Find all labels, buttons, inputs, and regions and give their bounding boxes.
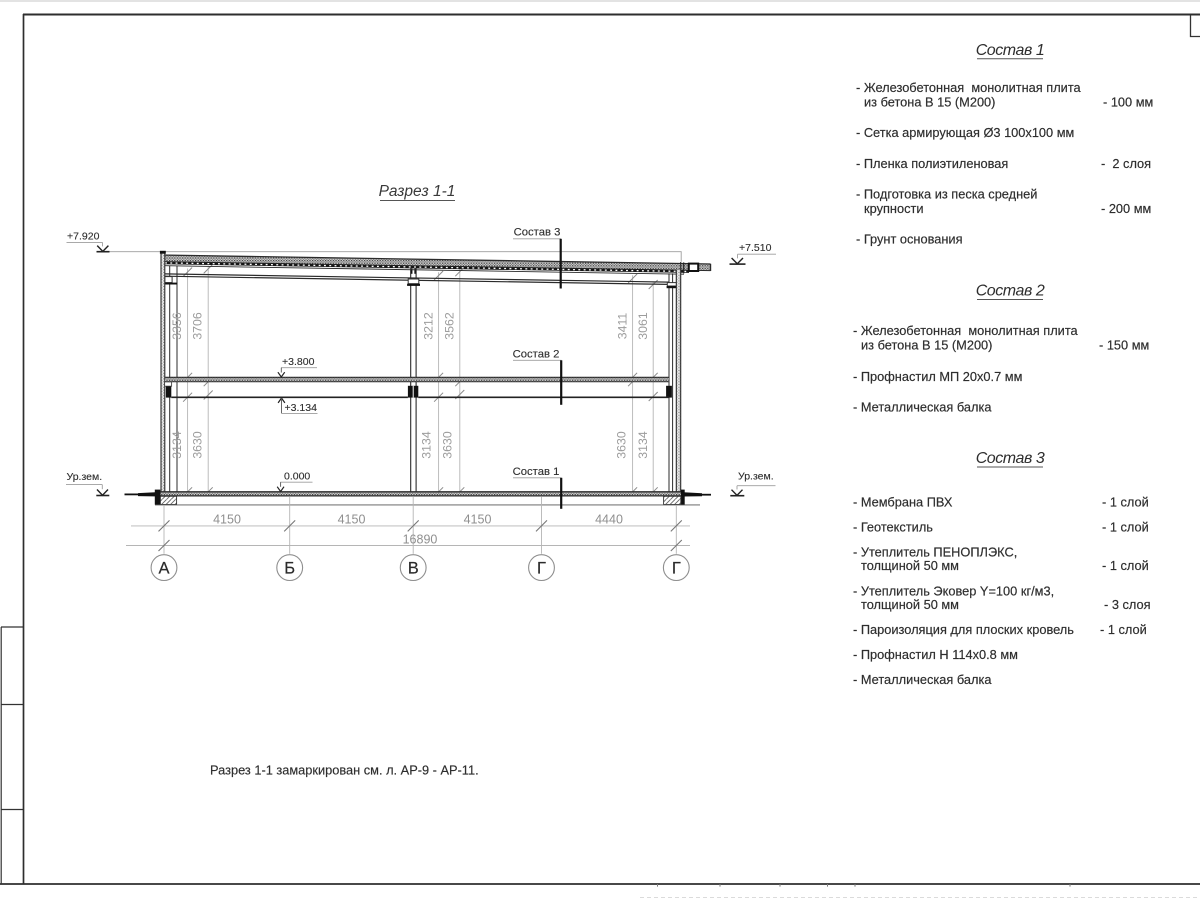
svg-text:- Пароизоляция для плоских кро: - Пароизоляция для плоских кровель [853,622,1074,637]
svg-text:толщиной 50 мм: толщиной 50 мм [861,597,959,612]
svg-text:3134: 3134 [420,431,434,459]
svg-text:- 1 слой: - 1 слой [1102,495,1149,510]
svg-text:4150: 4150 [213,512,241,526]
svg-text:- Железобетонная монолитная п: - Железобетонная монолитная плита [853,323,1079,338]
svg-text:- 100 мм: - 100 мм [1103,95,1153,110]
svg-text:Состав 3: Состав 3 [514,227,561,239]
svg-text:Состав 1: Состав 1 [513,466,560,478]
svg-text:Состав 2: Состав 2 [976,283,1045,300]
svg-text:- 1 слой: - 1 слой [1100,622,1147,637]
svg-text:3134: 3134 [636,431,650,459]
svg-text:3411: 3411 [616,313,630,340]
svg-text:3562: 3562 [443,312,457,340]
svg-text:Разрез 1-1 замаркирован см. л.: Разрез 1-1 замаркирован см. л. АР-9 - АР… [210,763,479,778]
svg-text:- 1 слой: - 1 слой [1102,519,1149,534]
svg-text:- Пленка полиэтиленовая: - Пленка полиэтиленовая [856,156,1008,171]
svg-text:Ур.зем.: Ур.зем. [67,471,103,483]
svg-text:- 1 слой: - 1 слой [1102,558,1149,573]
svg-text:Ур.зем.: Ур.зем. [738,471,774,483]
svg-text:+7.510: +7.510 [739,242,772,254]
svg-text:- Металлическая балка: - Металлическая балка [853,672,992,687]
svg-text:Состав 2: Состав 2 [513,349,560,361]
svg-text:- 200 мм: - 200 мм [1101,201,1151,216]
svg-text:+3.800: +3.800 [282,356,315,368]
svg-text:В: В [408,559,419,577]
svg-text:3134: 3134 [170,431,184,459]
svg-text:16890: 16890 [403,532,438,546]
svg-text:- 2 слоя: - 2 слоя [1101,156,1151,171]
svg-text:- Сетка армирующая Ø3 100х100: - Сетка армирующая Ø3 100х100 мм [856,125,1074,140]
svg-text:4150: 4150 [464,512,492,526]
svg-text:4440: 4440 [595,512,623,526]
svg-text:- Металлическая балка: - Металлическая балка [853,400,992,415]
svg-text:из бетона В 15 (М200): из бетона В 15 (М200) [864,95,995,110]
svg-text:Разрез 1-1: Разрез 1-1 [379,183,456,200]
svg-text:Б: Б [284,559,295,577]
svg-text:- Мембрана ПВХ: - Мембрана ПВХ [853,495,953,510]
svg-text:крупности: крупности [864,201,924,216]
svg-text:- Профнастил Н 114х0.8 мм: - Профнастил Н 114х0.8 мм [853,647,1018,662]
svg-text:+7.920: +7.920 [67,231,100,243]
svg-text:Состав 3: Состав 3 [976,450,1045,467]
svg-text:толщиной 50 мм: толщиной 50 мм [861,558,959,573]
svg-text:3356: 3356 [170,312,184,340]
svg-text:3212: 3212 [422,312,436,340]
svg-text:из бетона В 15 (М200): из бетона В 15 (М200) [861,338,992,353]
svg-text:- Геотекстиль: - Геотекстиль [853,519,933,534]
svg-text:3706: 3706 [191,312,205,340]
svg-text:А: А [158,559,169,577]
svg-text:- Грунт основания: - Грунт основания [856,232,963,247]
svg-text:- Подготовка из песка средней: - Подготовка из песка средней [856,187,1037,202]
svg-text:Состав 1: Состав 1 [976,42,1045,59]
svg-text:3061: 3061 [636,312,650,340]
svg-text:Г: Г [537,559,546,577]
svg-text:+3.134: +3.134 [285,402,318,414]
svg-text:- 150 мм: - 150 мм [1099,338,1149,353]
svg-text:- Железобетонная монолитная п: - Железобетонная монолитная плита [856,80,1082,95]
svg-text:Г: Г [672,559,681,577]
svg-text:0.000: 0.000 [284,471,310,483]
svg-text:4150: 4150 [338,512,366,526]
svg-text:- 3 слоя: - 3 слоя [1104,597,1151,612]
svg-text:3630: 3630 [191,431,205,459]
svg-text:3630: 3630 [441,431,455,459]
svg-text:3630: 3630 [615,431,629,459]
svg-text:- Профнастил МП 20х0.7 мм: - Профнастил МП 20х0.7 мм [853,369,1022,384]
